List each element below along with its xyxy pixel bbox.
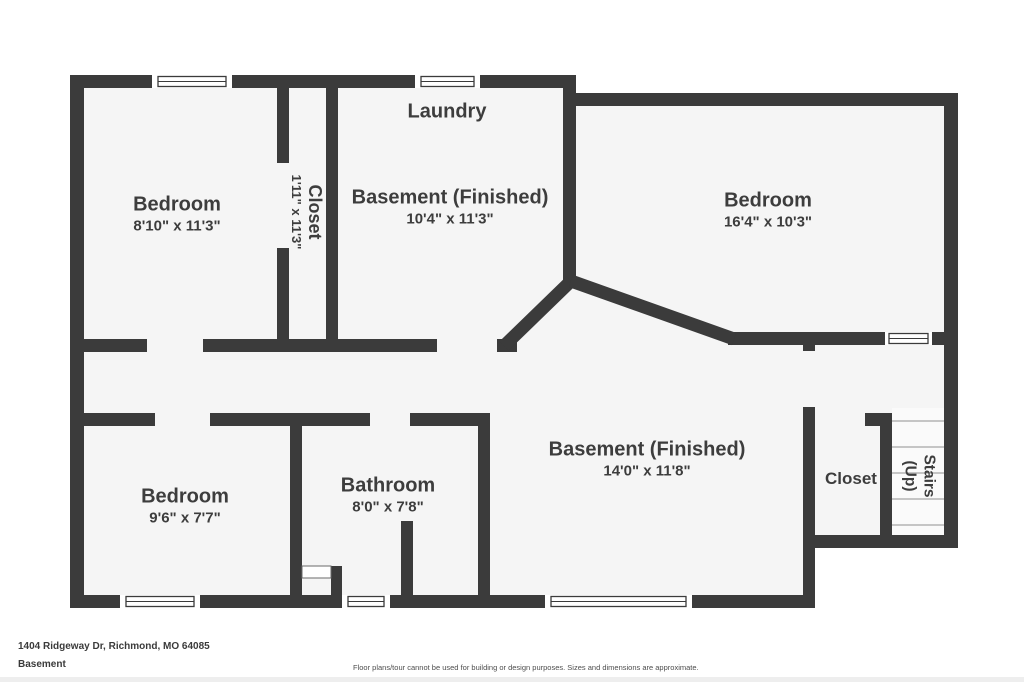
room-dims: 1'11" x 11'3" (287, 175, 304, 250)
room-label-closet-top: Closet 1'11" x 11'3" (287, 175, 325, 250)
room-label-basement-top: Basement (Finished) 10'4" x 11'3" (352, 186, 549, 229)
room-label-closet-bottom-right: Closet (825, 469, 877, 489)
wall-segment (401, 521, 413, 608)
room-label-stairs: Stairs (Up) (900, 454, 937, 497)
room-label-bedroom-top-left: Bedroom 8'10" x 11'3" (133, 193, 221, 236)
wall-segment (803, 407, 815, 608)
room-dims: 9'6" x 7'7" (141, 508, 229, 528)
wall-segment (478, 413, 490, 608)
floor-plan-drawing (0, 0, 1024, 682)
wall-segment (563, 93, 958, 106)
wall-segment (803, 332, 815, 351)
utility-closet-door (302, 566, 331, 578)
room-label-laundry: Laundry (408, 101, 487, 124)
floor-plan-page: Bedroom 8'10" x 11'3" Closet 1'11" x 11'… (0, 0, 1024, 682)
wall-segment (880, 413, 892, 548)
room-name: Bedroom (141, 485, 229, 508)
room-dims: 14'0" x 11'8" (549, 461, 746, 481)
room-dims: 8'0" x 7'8" (341, 497, 435, 517)
door-opening (370, 413, 410, 426)
wall-segment (70, 413, 490, 426)
door-opening (437, 339, 497, 352)
window (415, 75, 480, 88)
room-name: Bedroom (724, 189, 812, 212)
door-opening (147, 339, 203, 352)
door-opening (155, 413, 210, 426)
room-name: Stairs (919, 454, 938, 497)
room-label-basement-bottom: Basement (Finished) 14'0" x 11'8" (549, 438, 746, 481)
room-sublabel: (Up) (900, 454, 919, 497)
room-label-bathroom: Bathroom 8'0" x 7'8" (341, 474, 435, 517)
wall-segment (944, 93, 958, 548)
wall-segment (563, 75, 576, 287)
window (120, 595, 200, 608)
wall-segment (326, 88, 338, 352)
room-dims: 16'4" x 10'3" (724, 212, 812, 232)
room-label-bedroom-bottom-left: Bedroom 9'6" x 7'7" (141, 485, 229, 528)
room-name: Closet (304, 175, 325, 250)
room-name: Basement (Finished) (352, 186, 549, 209)
window (545, 595, 692, 608)
window (342, 595, 390, 608)
wall-segment (70, 75, 575, 88)
wall-segment (290, 413, 302, 608)
room-name: Bedroom (133, 193, 221, 216)
room-label-bedroom-top-right: Bedroom 16'4" x 10'3" (724, 189, 812, 232)
room-name: Closet (825, 469, 877, 489)
room-name: Bathroom (341, 474, 435, 497)
room-dims: 10'4" x 11'3" (352, 209, 549, 229)
room-dims: 8'10" x 11'3" (133, 216, 221, 236)
room-name: Laundry (408, 101, 487, 124)
door-opening (815, 413, 865, 426)
wall-segment (331, 566, 342, 608)
window (885, 332, 932, 345)
room-name: Basement (Finished) (549, 438, 746, 461)
window (152, 75, 232, 88)
